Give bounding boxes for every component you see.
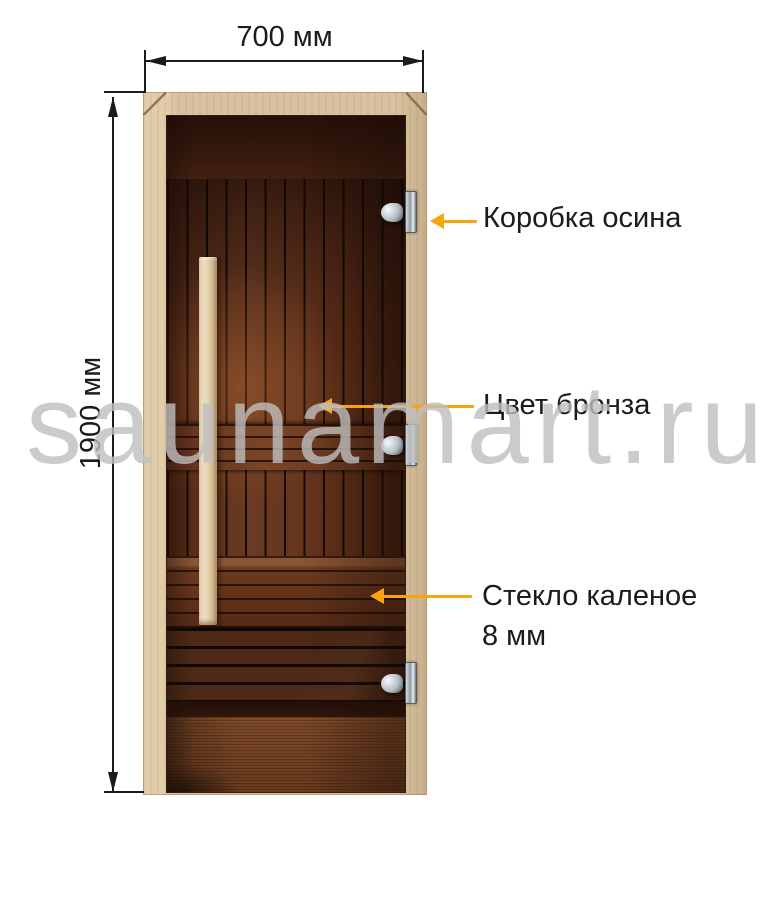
- door-hinge-bottom: [381, 660, 417, 706]
- hinge-plate: [405, 191, 417, 233]
- callout-label-line2: 8 мм: [482, 616, 697, 656]
- miter-joint-top-left: [143, 92, 166, 115]
- hinge-barrel: [381, 436, 403, 455]
- dimension-tick: [104, 91, 144, 93]
- arrowhead-icon: [430, 213, 444, 229]
- left-arrow-icon: [318, 398, 474, 414]
- width-dimension-label: 700 мм: [145, 21, 424, 54]
- left-arrow-icon: [370, 588, 472, 604]
- miter-joint-top-right: [406, 92, 427, 115]
- width-dimension-line-icon: [146, 60, 423, 62]
- callout-label: Стекло каленое 8 мм: [482, 576, 697, 656]
- hinge-barrel: [381, 674, 403, 693]
- arrow-shaft: [331, 405, 474, 408]
- left-arrow-icon: [430, 213, 477, 229]
- hinge-plate: [405, 662, 417, 704]
- door-handle: [199, 257, 217, 625]
- dimension-tick: [422, 50, 424, 93]
- hinge-plate: [405, 424, 417, 466]
- arrowhead-icon: [370, 588, 384, 604]
- door-hinge-middle: [381, 422, 417, 468]
- height-dimension-label: 1900 мм: [74, 330, 108, 496]
- annotated-product-image: saunamart.ru 700 мм 1900 мм Коробка осин…: [0, 0, 762, 900]
- dimension-tick: [144, 50, 146, 93]
- dimension-tick: [104, 791, 144, 793]
- callout-label: Цвет бронза: [483, 387, 650, 423]
- callout-label: Коробка осина: [483, 200, 681, 236]
- arrow-shaft: [383, 595, 472, 598]
- height-dimension-line-icon: [112, 97, 114, 792]
- door-hinge-top: [381, 189, 417, 235]
- callout-label-line1: Стекло каленое: [482, 576, 697, 616]
- hinge-barrel: [381, 203, 403, 222]
- arrow-shaft: [443, 220, 477, 223]
- arrowhead-icon: [318, 398, 332, 414]
- sauna-door: [143, 92, 427, 795]
